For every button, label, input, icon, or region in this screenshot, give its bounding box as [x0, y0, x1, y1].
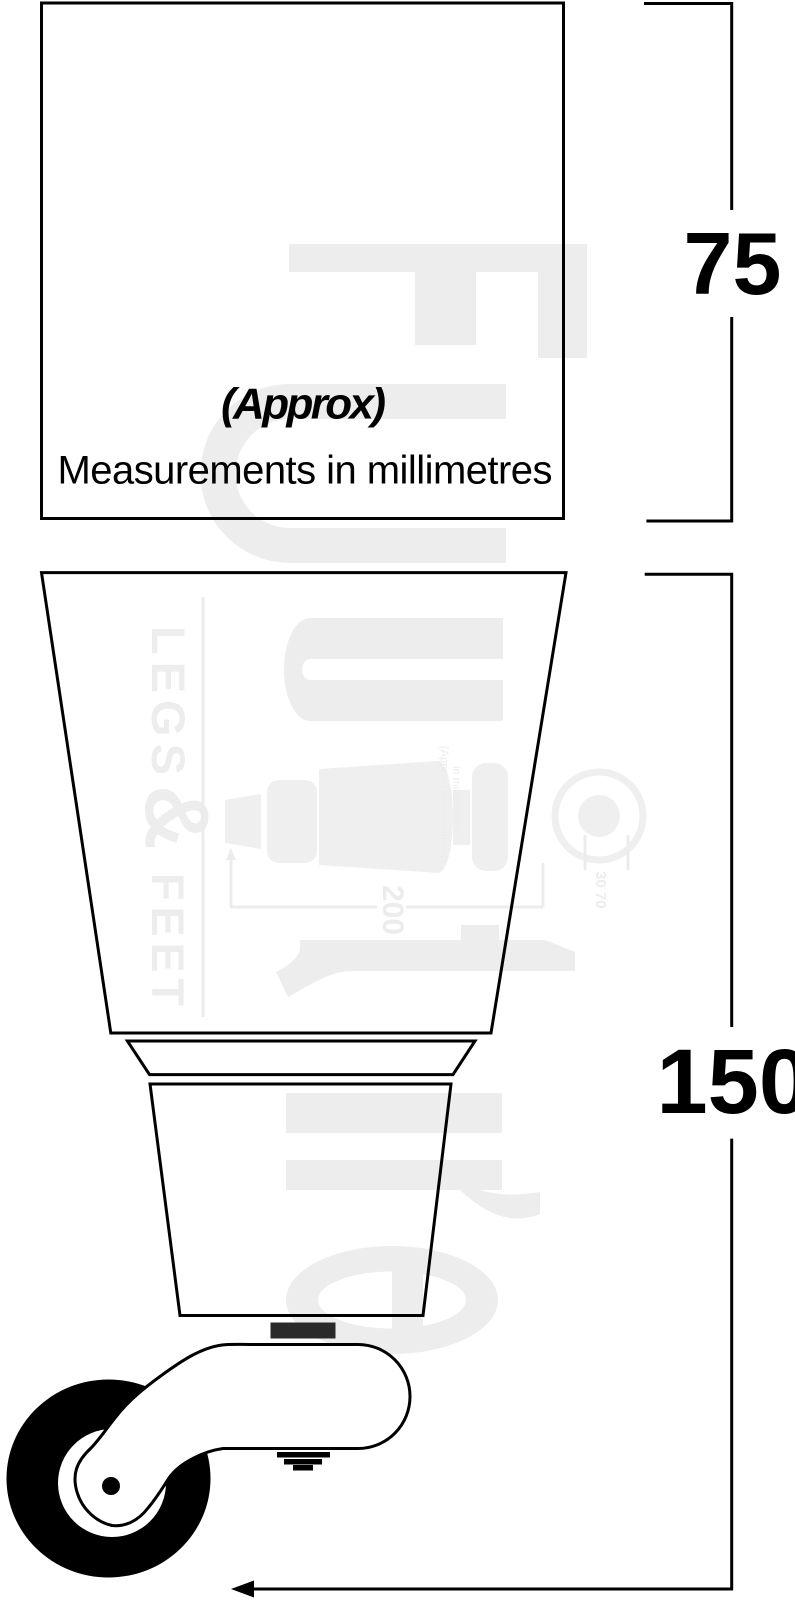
svg-text:30 70: 30 70	[592, 871, 609, 909]
svg-text:&: &	[126, 785, 226, 850]
svg-text:(Approx) Measurements: (Approx) Measurements	[438, 746, 450, 864]
svg-text:75: 75	[684, 214, 782, 313]
svg-text:150: 150	[657, 1031, 795, 1133]
svg-text:(Approx): (Approx)	[221, 380, 386, 429]
svg-text:Measurements in millimetres: Measurements in millimetres	[58, 449, 553, 493]
svg-text:FEET: FEET	[142, 873, 193, 1012]
svg-text:200: 200	[376, 885, 409, 935]
svg-text:LEGS: LEGS	[142, 626, 195, 782]
svg-text:in millimetres: in millimetres	[450, 766, 462, 831]
